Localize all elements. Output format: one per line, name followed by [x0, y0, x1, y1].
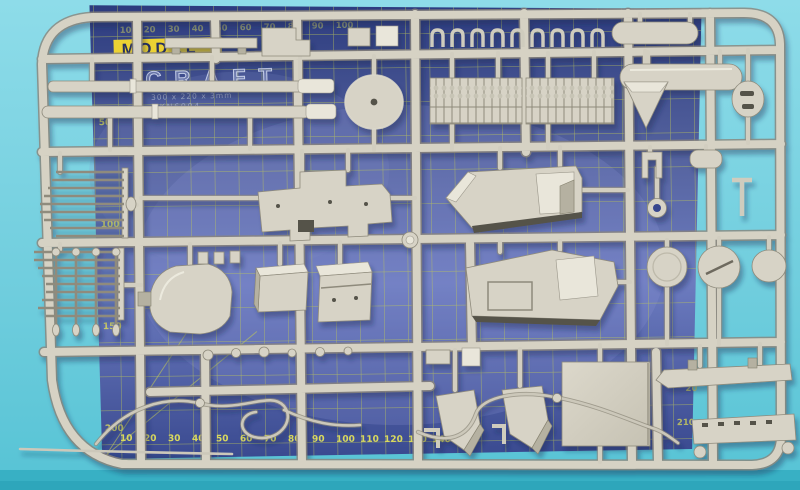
road-wheel-center [698, 246, 740, 288]
cable-fitting-left [196, 399, 205, 408]
ruler-number: 10 [120, 26, 132, 36]
road-wheel-left [647, 247, 687, 287]
stowage-box-small [254, 264, 308, 312]
track-section-right [526, 78, 614, 124]
gun-barrel-long [48, 79, 334, 93]
ruler-number: 90 [312, 435, 325, 445]
small-cylinder [690, 150, 722, 168]
table-edge-shadow [0, 481, 800, 490]
gun-barrel-short [42, 104, 336, 119]
ruler-number: 120 [384, 435, 403, 445]
stowage-box-large [316, 262, 372, 322]
ruler-number: 50 [216, 434, 229, 444]
ruler-number: 60 [240, 23, 252, 33]
ruler-number: 110 [360, 435, 379, 445]
leaf-spring-lower [34, 248, 124, 320]
ruler-number: 90 [312, 21, 324, 31]
ruler-number: 40 [192, 24, 204, 34]
ruler-number: 20 [144, 25, 156, 35]
sprue-joiner-center [406, 236, 414, 244]
ruler-number: 10 [120, 434, 133, 444]
cable-fitting-right [553, 394, 562, 403]
vent-hatch-disc [732, 81, 764, 117]
turret-base-disc [345, 75, 403, 129]
ruler-number: 30 [168, 434, 181, 444]
towing-ring [648, 199, 667, 218]
ruler-number: 100 [336, 435, 355, 445]
ruler-number: 30 [168, 25, 180, 35]
road-wheel-right [752, 250, 786, 282]
fuel-tank-small [612, 22, 698, 44]
floor-panel [562, 362, 650, 446]
sprue-photo: MODEL CRAFT 300 x 220 x 3mm PKN6004 1020… [0, 0, 800, 490]
track-section-left [430, 78, 522, 124]
fuel-tank-highlight [630, 69, 732, 70]
